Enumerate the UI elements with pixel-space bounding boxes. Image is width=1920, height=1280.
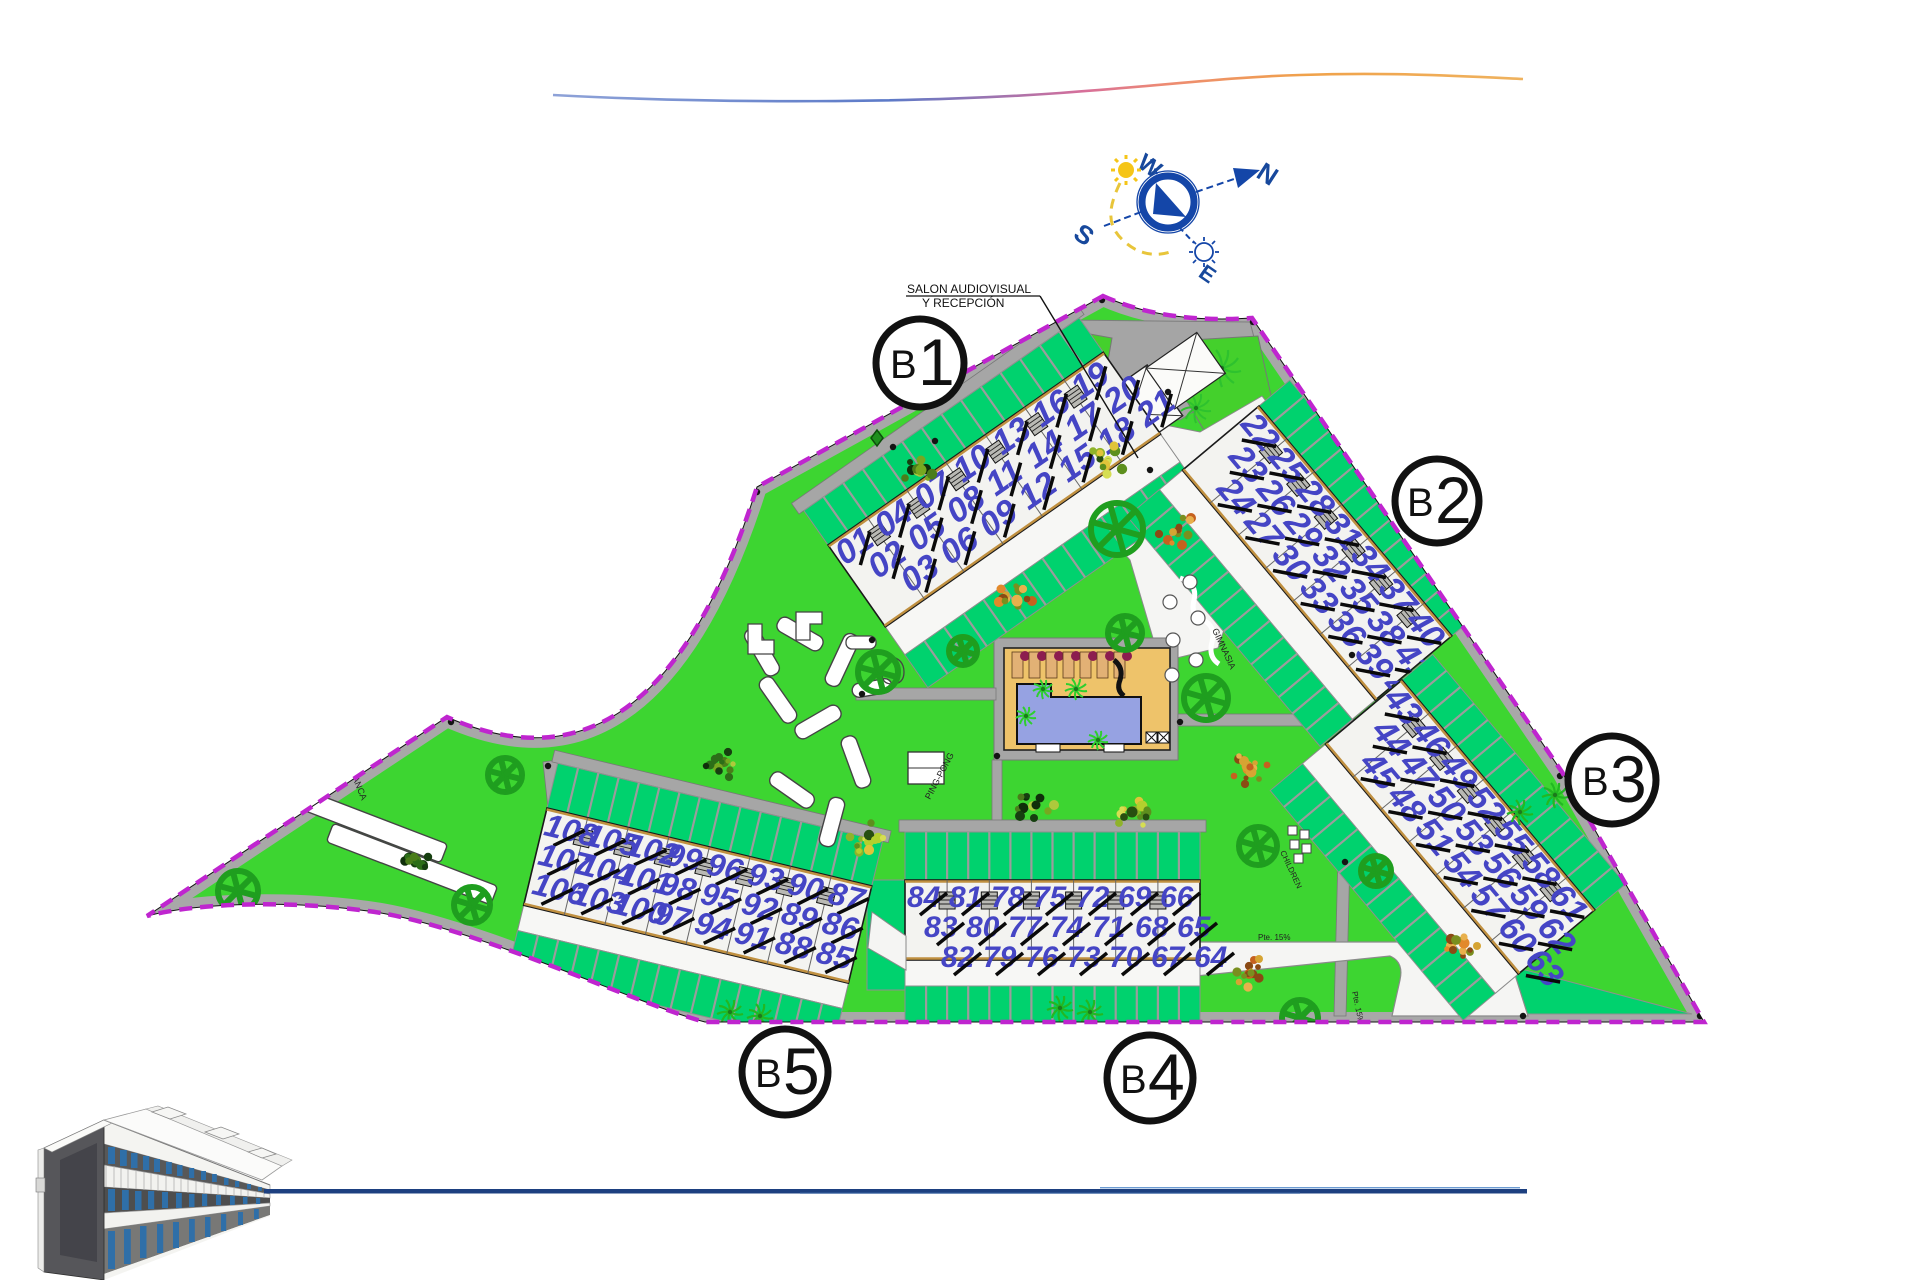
svg-text:70: 70 — [1109, 941, 1143, 974]
svg-text:Pte. 15%: Pte. 15% — [1258, 933, 1290, 942]
svg-text:4: 4 — [1148, 1040, 1185, 1114]
svg-text:B: B — [1582, 760, 1609, 804]
svg-text:72: 72 — [1076, 881, 1110, 914]
svg-text:83: 83 — [924, 911, 958, 944]
svg-text:77: 77 — [1008, 911, 1043, 944]
svg-text:76: 76 — [1025, 941, 1059, 974]
svg-text:Y RECEPCIÓN: Y RECEPCIÓN — [922, 295, 1004, 310]
svg-text:74: 74 — [1050, 911, 1084, 944]
svg-text:80: 80 — [966, 911, 1000, 944]
svg-text:B: B — [890, 343, 917, 387]
svg-text:66: 66 — [1160, 881, 1194, 914]
svg-text:64: 64 — [1194, 941, 1228, 974]
svg-text:79: 79 — [983, 941, 1017, 974]
svg-text:75: 75 — [1033, 881, 1068, 914]
svg-text:69: 69 — [1118, 881, 1152, 914]
svg-text:1: 1 — [918, 325, 955, 399]
svg-text:3: 3 — [1610, 742, 1647, 816]
svg-text:B: B — [755, 1052, 782, 1096]
svg-text:5: 5 — [783, 1034, 820, 1108]
svg-text:SALON AUDIOVISUAL: SALON AUDIOVISUAL — [907, 282, 1031, 296]
svg-text:71: 71 — [1092, 911, 1125, 944]
svg-text:82: 82 — [941, 941, 975, 974]
svg-text:68: 68 — [1135, 911, 1169, 944]
svg-text:84: 84 — [907, 881, 941, 914]
svg-text:B: B — [1407, 481, 1434, 525]
svg-text:81: 81 — [949, 881, 982, 914]
svg-text:78: 78 — [991, 881, 1025, 914]
svg-text:73: 73 — [1067, 941, 1101, 974]
svg-text:2: 2 — [1435, 463, 1472, 537]
svg-text:67: 67 — [1151, 941, 1186, 974]
svg-text:65: 65 — [1177, 911, 1212, 944]
svg-text:B: B — [1120, 1058, 1147, 1102]
